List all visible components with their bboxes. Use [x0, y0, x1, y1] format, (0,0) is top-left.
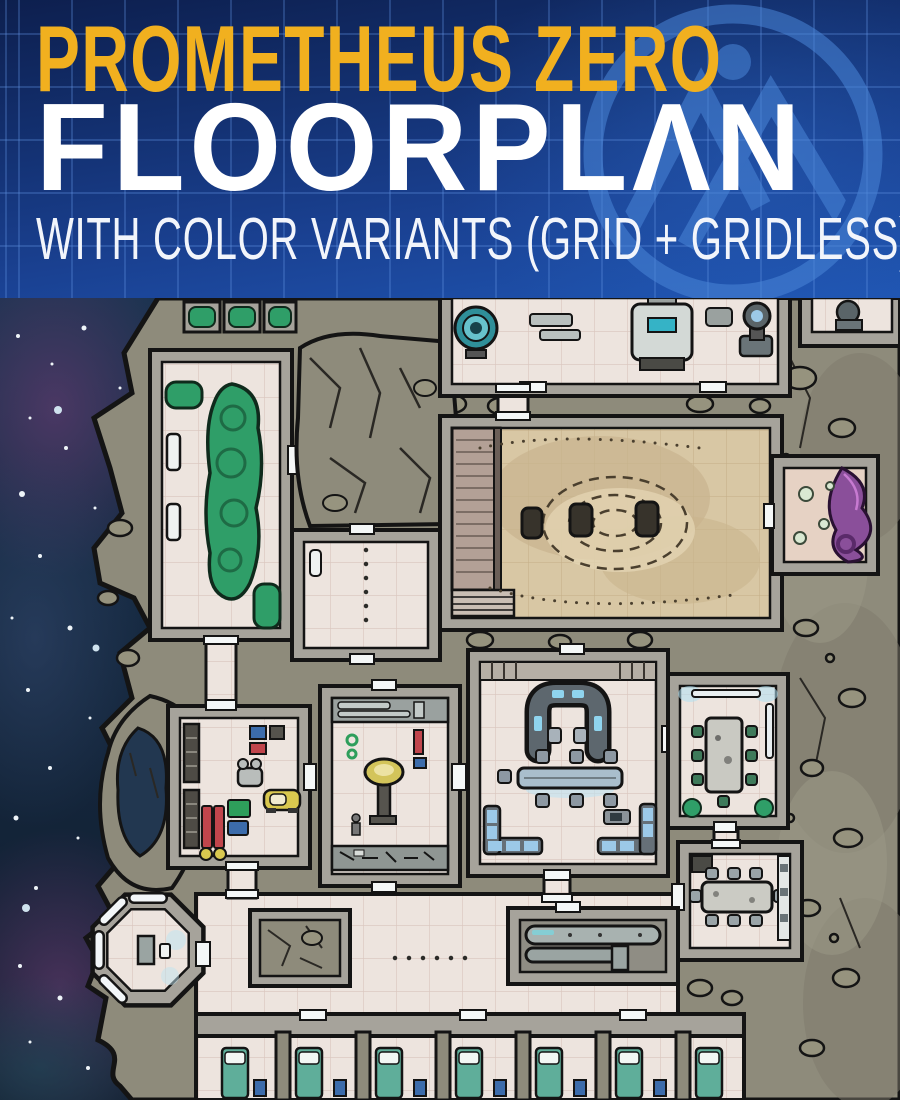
hedge-planters [184, 302, 296, 332]
storage-room [168, 700, 316, 868]
poster: PROMETHEUS ZERO FLOORPLΛN WITH COLOR VAR… [0, 0, 900, 1100]
dining-room [672, 842, 802, 960]
tank-machine [632, 298, 692, 370]
page-title: FLOORPLΛN [36, 86, 805, 210]
meeting-table [706, 718, 742, 792]
alien-growth-chamber [764, 456, 878, 574]
map-canvas [0, 298, 900, 1100]
machine-hall [440, 298, 790, 396]
quarters-room [292, 524, 440, 664]
workshop-room [320, 680, 466, 892]
workbench [332, 846, 448, 870]
garden-hedge [206, 384, 262, 599]
barracks-cubicles [196, 1010, 744, 1100]
excavation-chamber [440, 416, 782, 630]
machine-band [332, 698, 448, 722]
pipe-machine-room [508, 902, 678, 984]
meeting-room [668, 674, 788, 832]
platform-deck [452, 428, 501, 590]
vehicle [264, 790, 300, 813]
hedge-garden-room [150, 350, 298, 640]
steps [452, 590, 514, 616]
collapsed-rock-room [250, 910, 350, 986]
top-right-machine-room [800, 298, 900, 346]
dining-table [702, 882, 772, 912]
command-room [468, 644, 674, 880]
subtitle-text: WITH COLOR VARIANTS (GRID + GRIDLESS) [36, 210, 900, 269]
counter [778, 856, 790, 940]
rock-outcrop [297, 334, 457, 526]
banner: PROMETHEUS ZERO FLOORPLΛN WITH COLOR VAR… [0, 0, 900, 298]
